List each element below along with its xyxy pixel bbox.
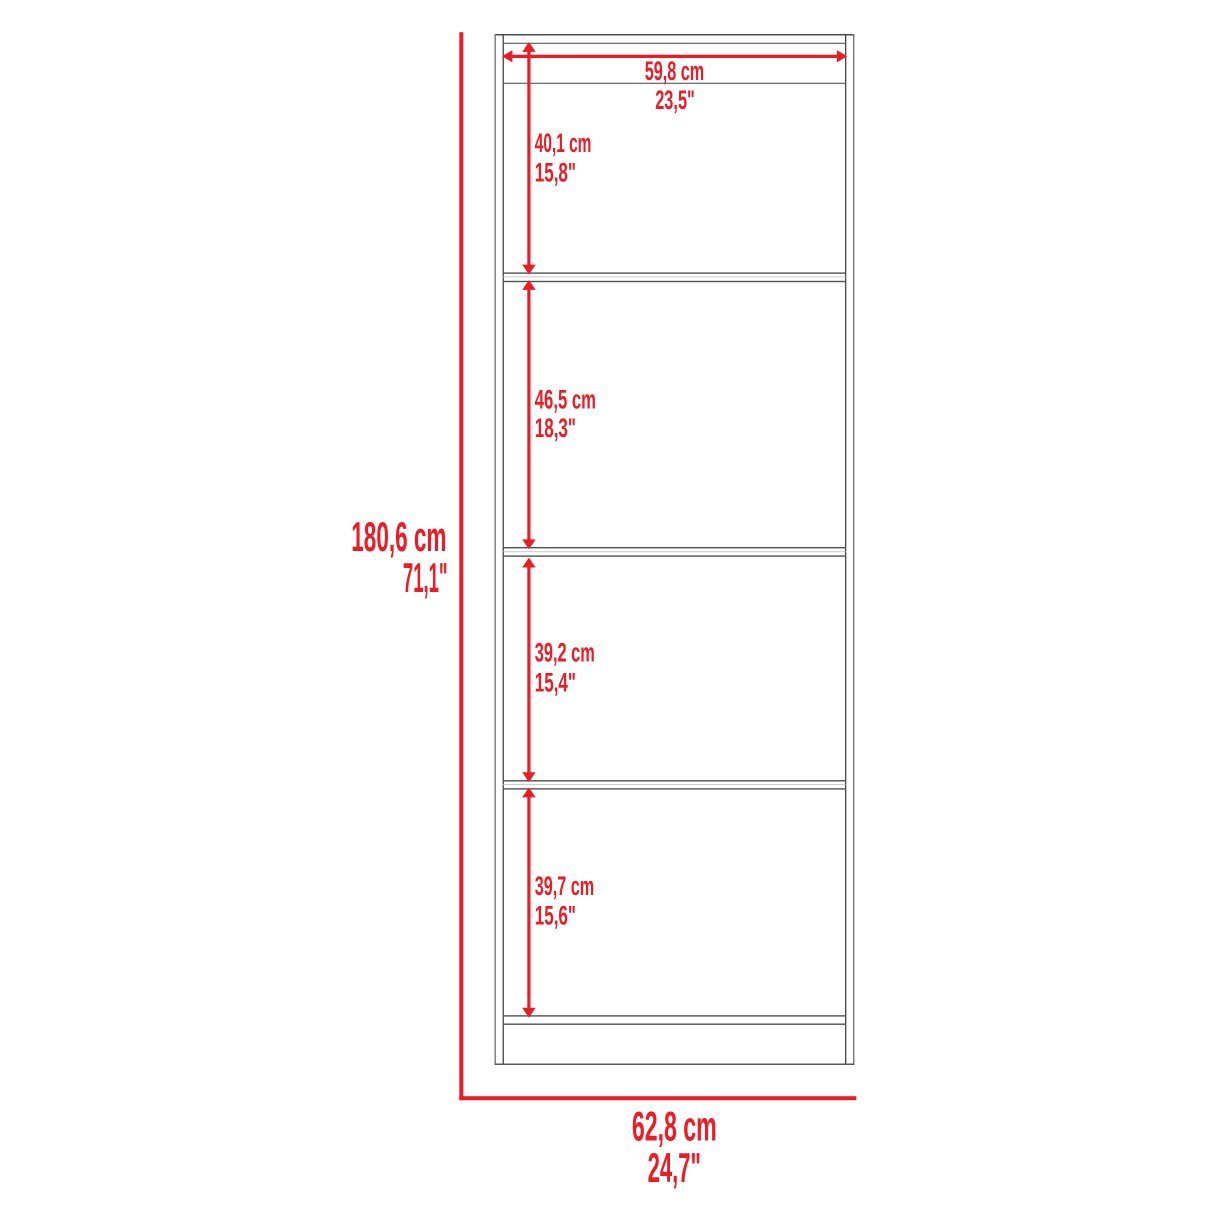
svg-text:59,8 cm: 59,8 cm [645,56,704,86]
svg-text:39,7 cm: 39,7 cm [535,871,594,901]
svg-text:15,4": 15,4" [535,667,576,697]
svg-text:23,5": 23,5" [655,85,695,115]
svg-text:39,2 cm: 39,2 cm [535,637,595,667]
svg-text:18,3": 18,3" [535,413,576,443]
svg-text:40,1 cm: 40,1 cm [535,127,592,158]
svg-text:15,6": 15,6" [535,900,576,930]
svg-text:62,8 cm: 62,8 cm [632,1103,717,1150]
svg-text:15,8": 15,8" [535,157,576,187]
svg-text:46,5 cm: 46,5 cm [535,385,596,415]
svg-text:24,7": 24,7" [648,1146,701,1192]
svg-text:71,1": 71,1" [403,555,448,602]
